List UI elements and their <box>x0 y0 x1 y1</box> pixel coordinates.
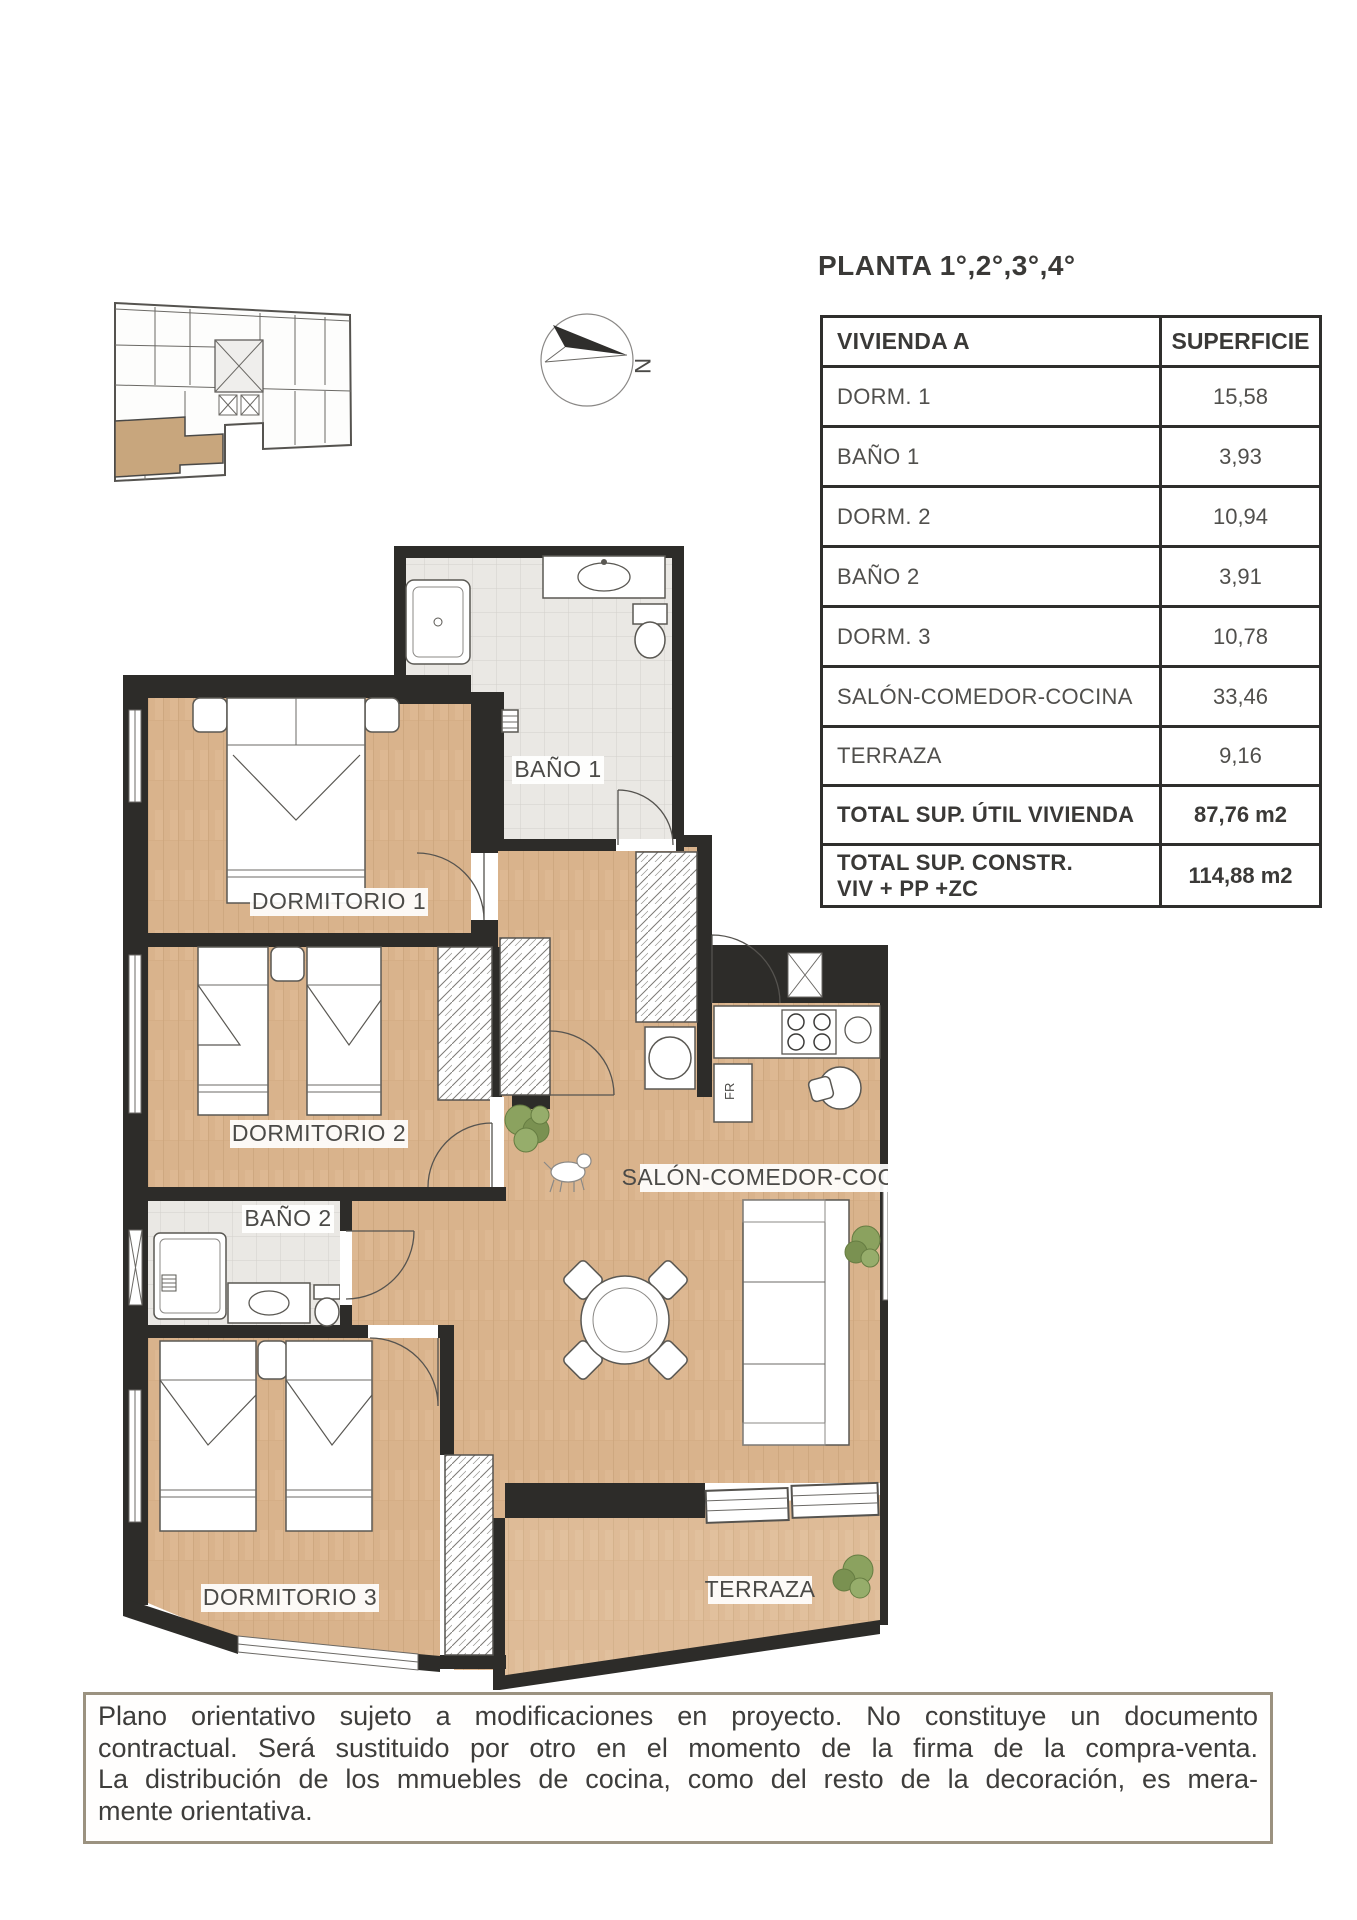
toilet-tank <box>633 604 667 624</box>
washing-machine <box>645 1027 695 1089</box>
row-value: 33,46 <box>1162 684 1319 710</box>
table-row: BAÑO 1 3,93 <box>823 425 1319 485</box>
table-header-unit: VIVIENDA A <box>823 318 1162 365</box>
row-value: 3,91 <box>1162 564 1319 590</box>
table-row: SALÓN-COMEDOR-COCINA 33,46 <box>823 665 1319 725</box>
table-header-area: SUPERFICIE <box>1162 328 1319 355</box>
compass-needle <box>553 325 627 355</box>
toilet-bowl <box>315 1298 339 1326</box>
label-dormitorio3: DORMITORIO 3 <box>203 1584 377 1610</box>
wardrobe-dorm3 <box>445 1455 493 1655</box>
disclaimer-line: Plano orientativo sujeto a modificacione… <box>98 1701 1258 1733</box>
compass-north-label: N <box>630 358 655 374</box>
table-row: TERRAZA 9,16 <box>823 725 1319 784</box>
lobby-floor <box>340 1201 454 1325</box>
total-value: 114,88 m2 <box>1162 863 1319 889</box>
chair <box>808 1076 835 1103</box>
label-salon: SALÓN-COMEDOR-COCINA <box>622 1164 888 1190</box>
row-value: 15,58 <box>1162 384 1319 410</box>
total-value: 87,76 m2 <box>1162 802 1319 828</box>
floorplan-document: N PLANTA 1°,2°,3°,4° VIVIENDA A SUPERFIC… <box>0 0 1357 1920</box>
label-terraza: TERRAZA <box>705 1576 816 1602</box>
row-label: BAÑO 1 <box>823 428 1162 485</box>
label-bano2: BAÑO 2 <box>244 1205 331 1231</box>
disclaimer-box: Plano orientativo sujeto a modificacione… <box>83 1692 1273 1844</box>
shower-tray <box>154 1233 226 1319</box>
disclaimer-line: La distribución de los mmuebles de cocin… <box>98 1764 1258 1796</box>
row-label: DORM. 1 <box>823 368 1162 425</box>
surface-table: VIVIENDA A SUPERFICIE DORM. 1 15,58 BAÑO… <box>820 315 1322 908</box>
label-dormitorio1: DORMITORIO 1 <box>252 888 426 914</box>
fridge-label: FR <box>722 1083 737 1100</box>
toilet-bowl <box>635 622 665 658</box>
label-bano1: BAÑO 1 <box>514 756 601 782</box>
closet-hall <box>636 852 697 1022</box>
table-row: DORM. 2 10,94 <box>823 485 1319 545</box>
towel-radiator-icon <box>502 710 518 732</box>
north-compass: N <box>525 300 665 430</box>
row-value: 10,94 <box>1162 504 1319 530</box>
table-total-row: TOTAL SUP. CONSTR. VIV + PP +ZC 114,88 m… <box>823 843 1319 905</box>
toilet-tank <box>314 1285 340 1299</box>
row-label: DORM. 2 <box>823 488 1162 545</box>
apartment-floor-plan: FR <box>88 540 888 1690</box>
wardrobe-dorm2 <box>438 947 492 1100</box>
disclaimer-line: contractual. Será sustituido por otro en… <box>98 1733 1258 1765</box>
page-title: PLANTA 1°,2°,3°,4° <box>818 250 1076 282</box>
table-header-row: VIVIENDA A SUPERFICIE <box>823 318 1319 365</box>
building-key-plan <box>85 245 360 500</box>
label-dormitorio2: DORMITORIO 2 <box>232 1120 406 1146</box>
table-row: DORM. 3 10,78 <box>823 605 1319 665</box>
table-row: DORM. 1 15,58 <box>823 365 1319 425</box>
sofa <box>743 1200 849 1445</box>
row-value: 3,93 <box>1162 444 1319 470</box>
row-value: 9,16 <box>1162 743 1319 769</box>
disclaimer-line: mente orientativa. <box>98 1796 1258 1828</box>
table-total-row: TOTAL SUP. ÚTIL VIVIENDA 87,76 m2 <box>823 784 1319 843</box>
closet-corridor <box>500 938 550 1095</box>
row-value: 10,78 <box>1162 624 1319 650</box>
table-row: BAÑO 2 3,91 <box>823 545 1319 605</box>
shower-tray <box>406 580 470 664</box>
vanity <box>228 1283 310 1323</box>
